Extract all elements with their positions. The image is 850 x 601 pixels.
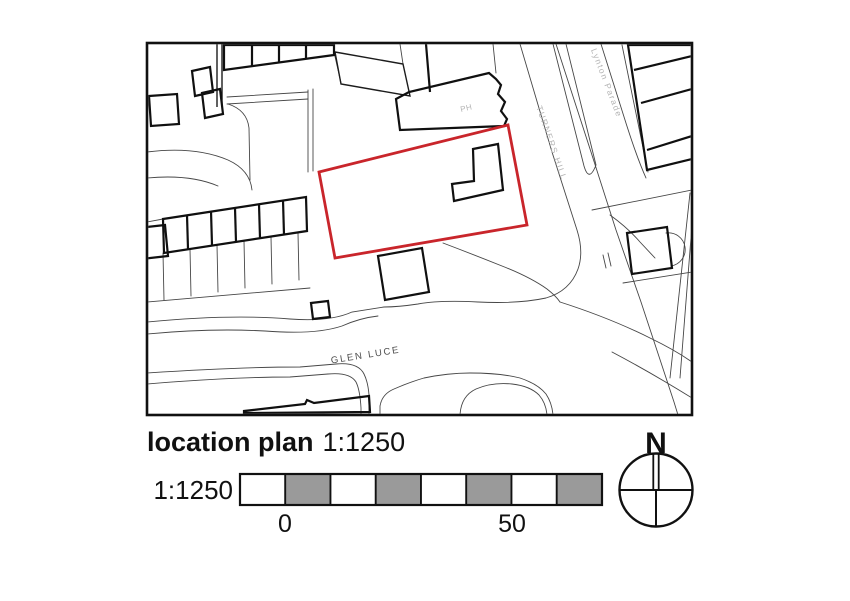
scale-bar: 1:1250 0 50	[153, 474, 602, 538]
north-arrow: N	[620, 427, 693, 527]
location-plan-page: PH TURNERS HILL Lynton Parade GLEN LUCE …	[0, 0, 850, 601]
map-canvas: PH TURNERS HILL Lynton Parade GLEN LUCE	[138, 44, 702, 415]
scale-bar-segments	[240, 474, 602, 505]
map-label-glen-luce: GLEN LUCE	[330, 345, 401, 367]
map-label-lynton-parade: Lynton Parade	[589, 47, 625, 119]
scale-tick-zero: 0	[278, 510, 292, 538]
page-title-scale: 1:1250	[323, 427, 406, 457]
secondary-building-lines	[217, 44, 410, 107]
page-title-bold: location plan	[147, 427, 314, 457]
scale-bar-ratio-label: 1:1250	[153, 475, 233, 505]
page-title: location plan1:1250	[147, 427, 405, 457]
map-label-ph: PH	[459, 102, 473, 113]
location-plan-figure: PH TURNERS HILL Lynton Parade GLEN LUCE …	[0, 0, 850, 601]
map-label-turners-hill: TURNERS HILL	[534, 104, 569, 181]
scale-tick-fifty: 50	[498, 510, 526, 538]
